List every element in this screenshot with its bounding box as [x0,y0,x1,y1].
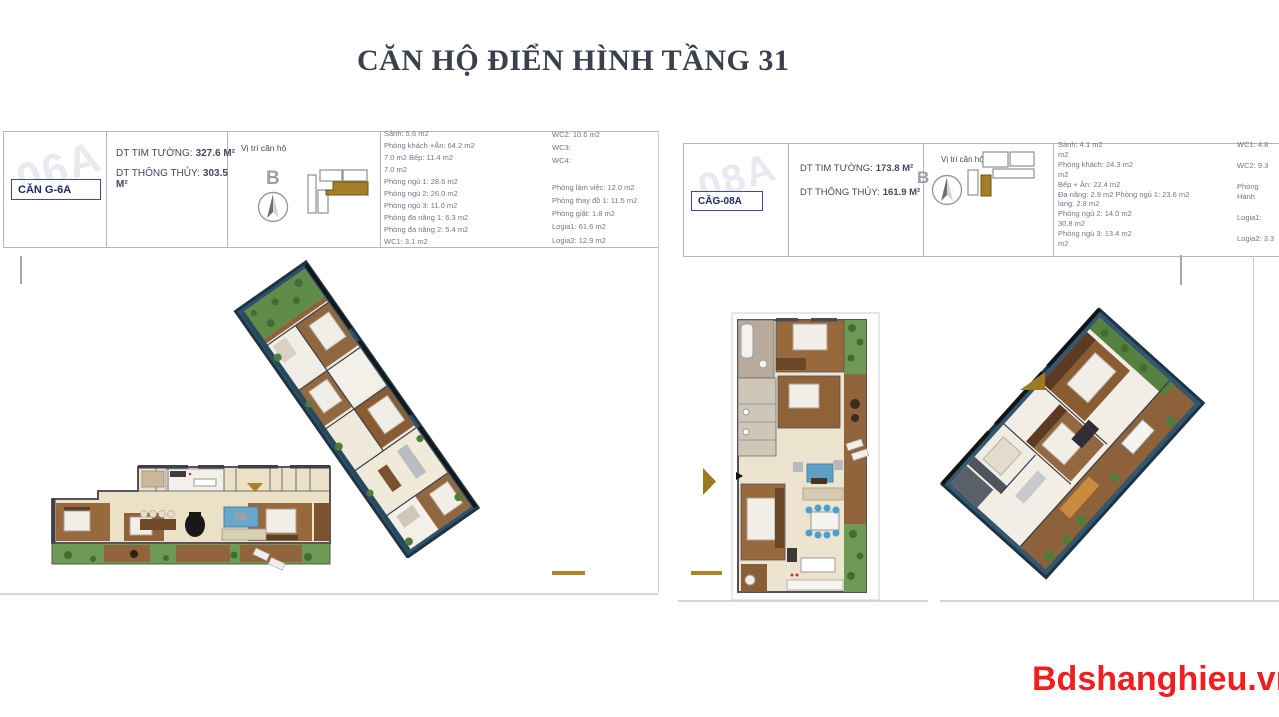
room-line: WC1: 4.8 [1237,140,1274,150]
right-area-tim-tuong: DT TIM TƯỜNG:173.8 M² [800,163,928,174]
site-watermark: Bdshanghieu.vn [1032,660,1279,699]
right-2d-floorplan [731,312,881,602]
room-line: Sảnh: 4.1 m2 [1058,140,1189,150]
room-line: Phòng ngủ 2: 14.0 m2 [1058,209,1189,219]
left-panel-tick [20,256,22,284]
right-highlighted-unit [981,175,991,196]
room-line: Đa năng: 2.9 m2 Phòng ngủ 1: 23.6 m2 [1058,190,1189,200]
left-2d-floorplan [38,455,338,573]
left-room-list-col2: WC2: 10.6 m2WC3:WC4: Phòng làm việc: 12.… [552,128,637,247]
room-line: m2 [1058,239,1189,249]
room-line: Sảnh: 5.6 m2 [384,128,475,140]
left-panel-right-border [658,131,659,593]
room-line: 7.0 m2 Bếp: 11.4 m2 [384,152,475,164]
right-unit-label-text: CĂG-08A [698,196,742,207]
room-line: Phòng khách: 24.3 m2 [1058,160,1189,170]
room-line [1237,171,1274,181]
right-3d-floorplan-render [940,306,1205,591]
left-unit-label-text: CĂN G-6A [18,184,71,196]
left-area-tim-tuong: DT TIM TƯỜNG:327.6 M² [116,148,240,159]
left-gold-dash [552,571,585,575]
room-line: WC1: 3.1 m2 [384,236,475,248]
brochure-page: CĂN HỘ ĐIỂN HÌNH TẦNG 31 06A CĂN G-6A DT… [0,0,1279,717]
room-line: Phòng giặt: 1.8 m2 [552,207,637,220]
left-table-left-border [3,131,4,247]
room-line: Phòng ngủ 3: 11.0 m2 [384,200,475,212]
left-unit-areas: DT TIM TƯỜNG:327.6 M² DT THÔNG THỦY:303.… [116,148,240,199]
room-line [552,168,637,181]
room-line: Phòng làm việc: 12.0 m2 [552,181,637,194]
right-room-list-col1: Sảnh: 4.1 m2m2Phòng khách: 24.3 m2m2Bếp … [1058,140,1189,249]
room-line: 30.8 m2 [1058,219,1189,229]
right-panel-bottom-border-b [940,600,1279,602]
right-compass-icon [931,174,963,206]
room-line: WC2: 10.6 m2 [552,128,637,141]
left-table-divider-1 [106,131,107,247]
room-line: Phòng ngủ 1: 28.6 m2 [384,176,475,188]
gold-arrow-left-icon [1020,372,1046,392]
right-table-divider-1 [788,143,789,256]
room-line [1237,223,1274,233]
room-line: Phòng ngủ 2: 26.0 m2 [384,188,475,200]
right-unit-areas: DT TIM TƯỜNG:173.8 M² DT THÔNG THỦY:161.… [800,163,928,207]
room-line [1237,202,1274,212]
right-table-left-border [683,143,684,256]
room-line: WC2: 9.3 [1237,161,1274,171]
gold-arrow-right-icon [703,468,719,496]
room-line: Hành [1237,192,1274,202]
room-line: m2 [1058,150,1189,160]
room-line: Phòng [1237,182,1274,192]
room-line: Logia1: [1237,213,1274,223]
room-line: Phòng thay đồ 1: 11.5 m2 [552,194,637,207]
room-line: WC3: [552,141,637,154]
room-line: 7.0 m2 [384,164,475,176]
left-location-label: Vị trí căn hộ [241,143,286,153]
left-area-thong-thuy: DT THÔNG THỦY:303.5 M² [116,168,240,190]
left-panel-bottom-border [0,593,658,595]
room-line: Phòng đa năng 1: 6.3 m2 [384,212,475,224]
right-area-thong-thuy: DT THÔNG THỦY:161.9 M² [800,187,928,198]
left-compass-icon [257,191,289,223]
room-line: Bếp + Ăn: 22.4 m2 [1058,180,1189,190]
left-table-bottom-border [3,247,658,248]
left-unit-location-diagram [306,168,370,218]
left-unit-label: CĂN G-6A [11,179,101,200]
room-line [1237,150,1274,160]
room-line: Logia2: 3.3 [1237,234,1274,244]
right-table-top-border [683,143,1279,144]
right-room-list-col2: WC1: 4.8 WC2: 9.3 PhòngHành Logia1: Logi… [1237,140,1274,244]
left-room-list-col1: Sảnh: 5.6 m2Phòng khách +Ăn: 64.2 m27.0 … [384,128,475,248]
room-line: Logia1: 61.6 m2 [552,220,637,233]
left-highlighted-unit [326,182,368,195]
right-panel-tick [1180,255,1182,285]
right-table-divider-3 [1053,143,1054,256]
room-line: Phòng khách +Ăn: 64.2 m2 [384,140,475,152]
right-compass-letter: B [917,168,929,188]
left-compass-letter: B [266,168,280,190]
page-title: CĂN HỘ ĐIỂN HÌNH TẦNG 31 [357,44,789,78]
room-line: Logia2: 12.9 m2 [552,234,637,247]
right-gold-dash [691,571,722,575]
room-line: Phòng đa năng 2: 5.4 m2 [384,224,475,236]
room-line: Phòng ngủ 3: 13.4 m2 [1058,229,1189,239]
left-table-divider-3 [380,131,381,247]
right-table-bottom-border [683,256,1279,257]
room-line: m2 [1058,170,1189,180]
room-line: WC4: [552,154,637,167]
room-line: lang: 2.8 m2 [1058,199,1189,209]
right-panel-right-border [1253,256,1254,601]
right-unit-label: CĂG-08A [691,191,763,211]
right-unit-location-diagram [966,150,1036,200]
